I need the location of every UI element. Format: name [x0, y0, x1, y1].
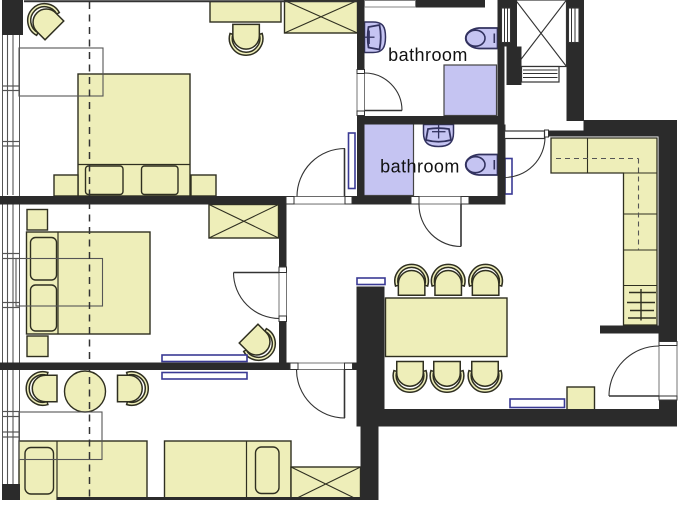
svg-text:bathroom: bathroom — [380, 157, 460, 177]
svg-text:bathroom: bathroom — [388, 45, 468, 65]
